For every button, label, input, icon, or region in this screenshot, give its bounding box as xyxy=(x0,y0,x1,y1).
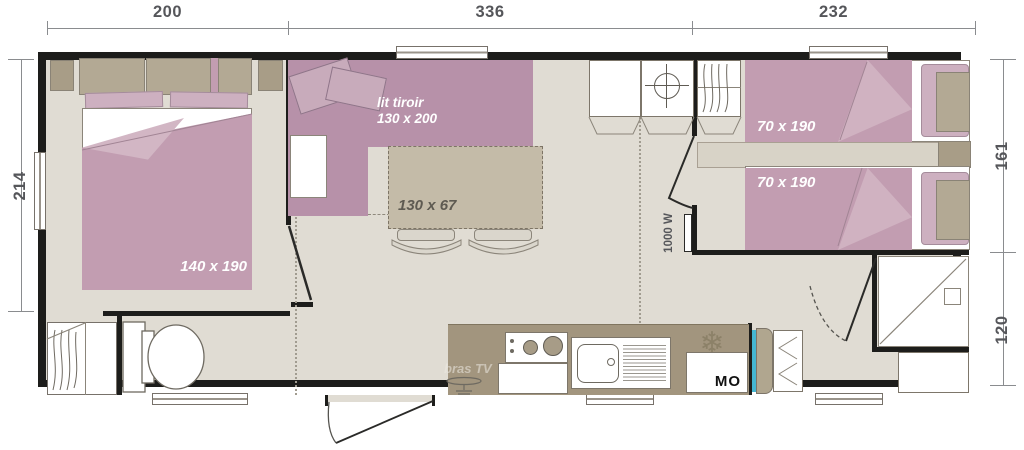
toilet-bowl xyxy=(148,325,204,389)
washbasin-cupboard-chevrons xyxy=(779,337,797,385)
twin-bottom-fold-line xyxy=(838,168,862,246)
master-wardrobe-door-flap xyxy=(47,323,85,339)
chair-1-back xyxy=(392,240,461,254)
cabinet-door-flaps xyxy=(589,117,741,134)
floor-plan-canvas: 200 336 232 214 161 120 140 x 190 xyxy=(0,0,1024,450)
master-door-leaf xyxy=(289,226,311,300)
master-bed-fold-line xyxy=(82,114,252,150)
entrance-door-leaf xyxy=(336,401,433,443)
bedroom2-door-leaf xyxy=(669,136,694,208)
bathroom-door-swing-arc xyxy=(810,286,846,341)
bedroom2-wardrobe-clothes-icon xyxy=(703,64,728,112)
tv-bracket-icon xyxy=(447,378,481,395)
chair-2-back xyxy=(469,240,538,254)
bathroom-door-leaf xyxy=(846,258,876,341)
entrance-door-swing-arc xyxy=(328,402,336,443)
master-wardrobe-clothes-icon xyxy=(53,330,77,390)
shower-diagonal xyxy=(880,259,966,344)
stroke-overlay xyxy=(0,0,1024,450)
twin-top-fold-line xyxy=(840,62,867,140)
